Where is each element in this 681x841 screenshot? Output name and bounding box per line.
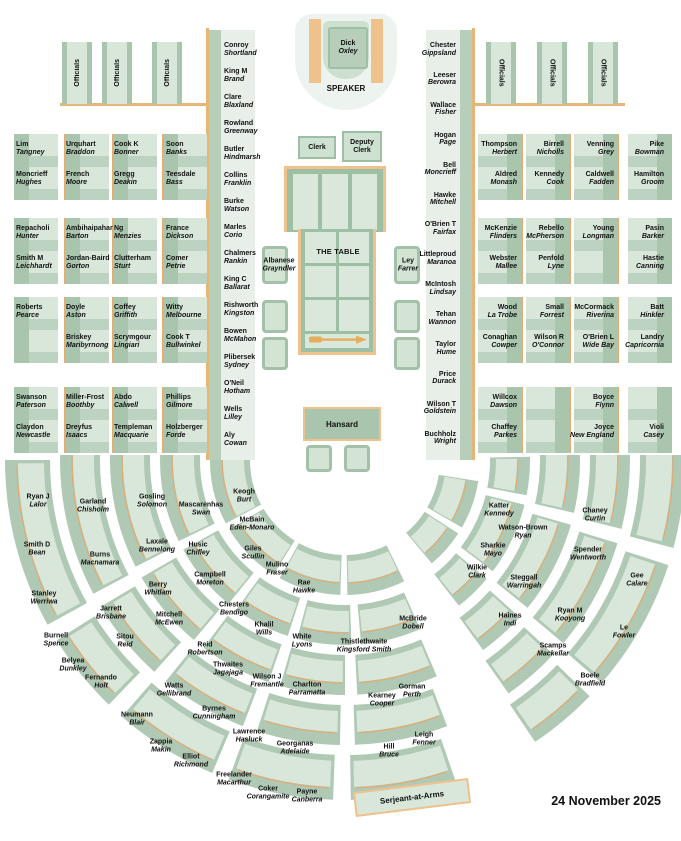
gov-frontbench-seat: PlibersekSydney [224, 354, 255, 369]
member-electorate: Bruce [379, 751, 399, 759]
opp-backbench-seat: KennedyCook [510, 171, 564, 186]
member-name: McIntosh [396, 281, 456, 289]
member-name: Moncrieff [16, 171, 48, 179]
gov-frontbench-seat: King MBrand [224, 68, 247, 83]
member-electorate: Hinkler [610, 312, 664, 320]
floor-seat-label: ElliotRichmond [174, 753, 208, 768]
gov-backbench-seat: Cook KBonner [114, 141, 139, 156]
member-electorate: Bennelong [139, 546, 175, 554]
gov-frontbench-seat: BurkeWatson [224, 198, 249, 213]
member-name: Plibersek [224, 354, 255, 362]
member-name: Mascarenhas [179, 501, 223, 509]
member-electorate: McMahon [224, 336, 256, 344]
opp-backbench-seat: VenningGrey [560, 141, 614, 156]
member-name: Thwaites [213, 661, 243, 669]
gov-backbench-seat: DoyleAston [66, 304, 86, 319]
member-name: Scamps [537, 642, 569, 650]
officials-label: Officials [114, 59, 121, 87]
floor-seat-label: CampbellMoreton [194, 571, 226, 586]
member-name: Swanson [16, 394, 47, 402]
member-electorate: Berowra [396, 79, 456, 87]
member-name: Burns [81, 551, 120, 559]
member-electorate: Barker [610, 233, 664, 241]
member-electorate: Makin [150, 746, 173, 754]
member-name: Katter [484, 502, 514, 510]
floor-seat-label: BurnellSpence [44, 632, 69, 647]
table-panel [305, 266, 336, 297]
member-name: Templeman [114, 424, 152, 432]
opp-frontbench-seat: BellMoncrieff [396, 162, 456, 177]
member-name: Stanley [30, 590, 57, 598]
member-electorate: Mackellar [537, 650, 569, 658]
member-electorate: Lalor [27, 501, 50, 509]
member-name: Rebello [510, 225, 564, 233]
member-electorate: Herbert [463, 149, 517, 157]
opp-backbench-seat: VioliCasey [610, 424, 664, 439]
gov-backbench-seat: TeesdaleBass [166, 171, 195, 186]
member-electorate: Corio [224, 232, 246, 240]
member-name: Wood [463, 304, 517, 312]
member-electorate: Casey [610, 432, 664, 440]
opp-backbench-seat: HamiltonGroom [610, 171, 664, 186]
floor-seat-label: FreelanderMacarthur [216, 771, 252, 786]
member-name: Holzberger [166, 424, 203, 432]
member-electorate: Aston [66, 312, 86, 320]
member-name: White [292, 633, 313, 641]
officials-desk: Officials [152, 42, 182, 104]
member-name: Chalmers [224, 250, 256, 258]
member-electorate: Reid [116, 641, 134, 649]
gov-backbench-seat: BriskeyMaribyrnong [66, 334, 108, 349]
gov-backbench-seat: LimTangney [16, 141, 45, 156]
member-electorate: Bean [24, 549, 50, 557]
officials-label: Officials [600, 59, 607, 87]
member-electorate: Gilmore [166, 402, 192, 410]
member-electorate: Chisholm [77, 506, 109, 514]
member-electorate: Hasluck [233, 736, 265, 744]
member-name: Thistlethwaite [337, 638, 391, 646]
member-electorate: McEwen [155, 619, 183, 627]
member-electorate: Bendigo [219, 609, 249, 617]
member-electorate: Petrie [166, 263, 188, 271]
opp-backbench-seat: HastieCanning [610, 255, 664, 270]
member-electorate: Werriwa [30, 598, 57, 606]
member-electorate: Parramatta [289, 689, 326, 697]
member-name: Payne [292, 788, 323, 796]
member-electorate: Calare [626, 580, 647, 588]
member-name: Reid [188, 641, 223, 649]
member-name: Sharkie [480, 542, 505, 550]
gov-frontbench-seat: AlyCowan [224, 432, 247, 447]
member-name: Small [510, 304, 564, 312]
member-name: Taylor [396, 341, 456, 349]
speaker-chair-trim-right [371, 19, 383, 83]
member-name: Kearney [368, 692, 396, 700]
member-name: Smith D [24, 541, 50, 549]
member-name: Hill [379, 743, 399, 751]
opp-backbench-seat: Wilson RO'Connor [510, 334, 564, 349]
member-electorate: Menzies [114, 233, 141, 241]
member-name: Scrymgour [114, 334, 151, 342]
member-name: Gregg [114, 171, 137, 179]
member-electorate: Fisher [396, 109, 456, 117]
member-name: Caldwell [560, 171, 614, 179]
speaker-chair-trim-left [309, 19, 321, 83]
member-electorate: Nicholls [510, 149, 564, 157]
gov-backbench-seat: TemplemanMacquarie [114, 424, 152, 439]
member-name: Le [613, 624, 636, 632]
officials-label: Officials [164, 59, 171, 87]
member-electorate: Rankin [224, 258, 256, 266]
speaker-name: Dick Oxley [338, 40, 357, 55]
gov-frontbench-seat: ButlerHindmarsh [224, 146, 261, 161]
plan-date: 24 November 2025 [551, 794, 661, 808]
gov-backbench-seat: SwansonPaterson [16, 394, 47, 409]
speaker-electorate: Oxley [338, 48, 357, 56]
member-electorate: Bradfield [575, 680, 605, 688]
member-name: Fernando [85, 674, 117, 682]
floor-seat-label: LeFowler [613, 624, 636, 639]
officials-label: Officials [498, 59, 505, 87]
member-electorate: McPherson [510, 233, 564, 241]
member-electorate: Deakin [114, 179, 137, 187]
opp-backbench-seat: McCormackRiverina [560, 304, 614, 319]
member-name: Butler [224, 146, 261, 154]
gov-backbench-seat: ComerPetrie [166, 255, 188, 270]
gov-backbench-seat: AbdoCalwell [114, 394, 138, 409]
floor-seat-label: LeighFenner [412, 731, 435, 746]
member-electorate: Tangney [16, 149, 45, 157]
gov-frontbench-seat: King CBallarat [224, 276, 250, 291]
member-electorate: Sturt [114, 263, 151, 271]
opp-backbench-seat: CaldwellFadden [560, 171, 614, 186]
member-electorate: Spence [44, 640, 69, 648]
member-electorate: Whitlam [144, 589, 171, 597]
member-name: Clare [224, 94, 253, 102]
opp-backbench-seat: BattHinkler [610, 304, 664, 319]
member-name: O'Neil [224, 380, 250, 388]
mace-icon [307, 333, 369, 346]
gov-frontbench-seat: MarlesCorio [224, 224, 246, 239]
member-electorate: Hindmarsh [224, 154, 261, 162]
member-name: O'Brien L [560, 334, 614, 342]
floor-seat-label: HainesIndi [499, 612, 522, 627]
member-electorate: Fowler [613, 632, 636, 640]
member-electorate: Mitchell [396, 199, 456, 207]
floor-seat-label: MitchellMcEwen [155, 611, 183, 626]
member-electorate: Greenway [224, 128, 257, 136]
officials-desk: Officials [537, 42, 567, 104]
member-name: Teesdale [166, 171, 195, 179]
member-name: King M [224, 68, 247, 76]
member-name: Steggall [507, 574, 542, 582]
member-electorate: Lyons [292, 641, 313, 649]
member-electorate: Gippsland [396, 50, 456, 58]
floor-seat-label: RaeHawke [293, 579, 315, 594]
member-electorate: Dickson [166, 233, 193, 241]
opposition-leader-seat-label: LeyFarrer [398, 257, 418, 272]
gov-frontbench-seat: CollinsFranklin [224, 172, 251, 187]
member-electorate: Richmond [174, 761, 208, 769]
member-name: Coker [247, 785, 290, 793]
officials-desk: Officials [486, 42, 516, 104]
member-electorate: Isaacs [66, 432, 92, 440]
floor-seat-label: SitouReid [116, 633, 134, 648]
member-name: Penfold [510, 255, 564, 263]
member-electorate: Parkes [463, 432, 517, 440]
member-electorate: Cunningham [193, 713, 236, 721]
opp-backbench-seat: McKenzieFlinders [463, 225, 517, 240]
member-electorate: Macnamara [81, 559, 120, 567]
floor-seat-label: LaxaleBennelong [139, 538, 175, 553]
member-electorate: Banks [166, 149, 187, 157]
member-electorate: Canberra [292, 796, 323, 804]
member-electorate: Chifley [186, 549, 209, 557]
member-electorate: Goldstein [396, 408, 456, 416]
member-name: Young [560, 225, 614, 233]
officials-desk: Officials [62, 42, 92, 104]
government-frontbench-desk [209, 30, 221, 460]
floor-seat-label: KhalilWills [254, 621, 273, 636]
member-name: Phillips [166, 394, 192, 402]
pm-seat-label: AlbaneseGrayndler [262, 257, 295, 272]
member-electorate: Corangamite [247, 793, 290, 801]
member-name: Rae [293, 579, 315, 587]
gov-backbench-seat: AmbihaipaharBarton [66, 225, 113, 240]
floor-seat-label: GarlandChisholm [77, 498, 109, 513]
gov-backbench-seat: PhillipsGilmore [166, 394, 192, 409]
officials-label: Officials [549, 59, 556, 87]
gov-frontbench-seat: WellsLilley [224, 406, 242, 421]
member-name: Burnell [44, 632, 69, 640]
member-name: Wilkie [467, 564, 487, 572]
gov-backbench-seat: Smith MLeichhardt [16, 255, 52, 270]
gov-backbench-seat: RepacholiHunter [16, 225, 49, 240]
member-electorate: Longman [560, 233, 614, 241]
member-name: Price [396, 371, 456, 379]
member-name: Cook T [166, 334, 201, 342]
member-name: McBain [230, 516, 275, 524]
member-name: Clutterham [114, 255, 151, 263]
member-name: Roberts [16, 304, 42, 312]
gov-backbench-seat: Jordan-BairdGorton [66, 255, 110, 270]
floor-seat-label: WhiteLyons [292, 633, 313, 648]
gov-backbench-seat: Miller-FrostBoothby [66, 394, 104, 409]
member-name: Khalil [254, 621, 273, 629]
member-name: Neumann [121, 711, 153, 719]
gov-backbench-seat: NgMenzies [114, 225, 141, 240]
member-electorate: Curtin [582, 515, 607, 523]
gov-backbench-seat: FranceDickson [166, 225, 193, 240]
opp-backbench-seat: WillcoxDawson [463, 394, 517, 409]
member-name: Miller-Frost [66, 394, 104, 402]
member-electorate: Dawson [463, 402, 517, 410]
member-electorate: O'Connor [510, 342, 564, 350]
floor-seat-label: SteggallWarringah [507, 574, 542, 589]
gov-backbench-seat: ClaydonNewcastle [16, 424, 50, 439]
member-name: Wilson R [510, 334, 564, 342]
member-electorate: Cowper [463, 342, 517, 350]
member-name: Wallace [396, 102, 456, 110]
floor-seat-label: ByrnesCunningham [193, 705, 236, 720]
member-name: Conaghan [463, 334, 517, 342]
member-name: Aly [224, 432, 247, 440]
bench-arc [494, 459, 518, 491]
member-electorate: Braddon [66, 149, 96, 157]
member-electorate: La Trobe [463, 312, 517, 320]
member-electorate: Blair [121, 719, 153, 727]
opp-backbench-seat: AldredMonash [463, 171, 517, 186]
member-name: Bell [396, 162, 456, 170]
member-name: Collins [224, 172, 251, 180]
floor-seat-label: MascarenhasSwan [179, 501, 223, 516]
opp-backbench-seat: PikeBowman [610, 141, 664, 156]
member-electorate: Hughes [16, 179, 48, 187]
member-name: Ambihaipahar [66, 225, 113, 233]
table-panel [339, 300, 370, 331]
floor-seat-label: JarrettBrisbane [96, 605, 126, 620]
member-electorate: Scullin [242, 553, 265, 561]
gov-frontbench-seat: ConroyShortland [224, 42, 257, 57]
opp-frontbench-seat: TaylorHume [396, 341, 456, 356]
member-name: Jarrett [96, 605, 126, 613]
floor-seat-label: GeeCalare [626, 572, 647, 587]
table-panel [352, 174, 377, 230]
floor-seat-label: CokerCorangamite [247, 785, 290, 800]
floor-seat-label: NeumannBlair [121, 711, 153, 726]
opp-frontbench-seat: O'Brien TFairfax [396, 221, 456, 236]
floor-seat-label: FernandoHolt [85, 674, 117, 689]
opp-frontbench-seat: ChesterGippsland [396, 42, 456, 57]
member-electorate: Perth [399, 691, 426, 699]
member-name: Venning [560, 141, 614, 149]
member-name: Mulino [266, 561, 289, 569]
member-name: Ryan J [27, 493, 50, 501]
member-name: Chaney [582, 507, 607, 515]
floor-seat-label: GilesScullin [242, 545, 265, 560]
member-electorate: Hawke [293, 587, 315, 595]
member-electorate: Brisbane [96, 613, 126, 621]
member-electorate: Franklin [224, 180, 251, 188]
member-electorate: Grayndler [262, 265, 295, 273]
member-electorate: Melbourne [166, 312, 201, 320]
member-electorate: Fraser [266, 569, 289, 577]
gov-backbench-seat: WittyMelbourne [166, 304, 201, 319]
member-name: Ley [398, 257, 418, 265]
member-electorate: Wide Bay [560, 342, 614, 350]
opp-frontbench-seat: WallaceFisher [396, 102, 456, 117]
member-electorate: Kingsford Smith [337, 646, 391, 654]
member-name: Wilson J [250, 673, 283, 681]
government-table-chair [262, 300, 288, 333]
member-electorate: Wills [254, 629, 273, 637]
table-label: THE TABLE [316, 247, 359, 256]
member-electorate: Groom [610, 179, 664, 187]
member-name: Leigh [412, 731, 435, 739]
member-name: Briskey [66, 334, 108, 342]
floor-seat-label: LawrenceHasluck [233, 728, 265, 743]
member-name: King C [224, 276, 250, 284]
member-name: Bowen [224, 328, 256, 336]
member-electorate: Grey [560, 149, 614, 157]
member-name: Spender [570, 546, 606, 554]
member-name: Byrnes [193, 705, 236, 713]
member-electorate: Bowman [610, 149, 664, 157]
member-electorate: Wright [396, 438, 456, 446]
member-electorate: Sydney [224, 362, 255, 370]
member-name: Comer [166, 255, 188, 263]
member-name: Kennedy [510, 171, 564, 179]
table-north-section [284, 166, 386, 232]
floor-seat-label: ChestersBendigo [219, 601, 249, 616]
member-electorate: Wentworth [570, 554, 606, 562]
member-name: Lawrence [233, 728, 265, 736]
member-electorate: Swan [179, 509, 223, 517]
member-name: Repacholi [16, 225, 49, 233]
gov-backbench-seat: RobertsPearce [16, 304, 42, 319]
floor-seat-label: BerryWhitlam [144, 581, 171, 596]
member-name: Soon [166, 141, 187, 149]
member-electorate: Gorton [66, 263, 110, 271]
member-name: Lim [16, 141, 45, 149]
hansard-chair [306, 445, 332, 472]
floor-seat-label: SharkieMayo [480, 542, 505, 557]
member-name: Witty [166, 304, 201, 312]
member-name: Batt [610, 304, 664, 312]
member-name: Willcox [463, 394, 517, 402]
opp-backbench-seat: WebsterMallee [463, 255, 517, 270]
floor-seat-label: KearneyCooper [368, 692, 396, 707]
member-name: Smith M [16, 255, 52, 263]
member-name: Haines [499, 612, 522, 620]
clerk-desk: Clerk [298, 136, 336, 159]
member-electorate: Moore [66, 179, 89, 187]
member-name: Georganas [277, 740, 314, 748]
floor-seat-label: Wilson JFremantle [250, 673, 283, 688]
member-electorate: Dobell [399, 623, 427, 631]
floor-seat-label: Smith DBean [24, 541, 50, 556]
member-electorate: Wannon [396, 319, 456, 327]
member-name: Jordan-Baird [66, 255, 110, 263]
floor-seat-label: WilkieClark [467, 564, 487, 579]
opp-backbench-seat: WoodLa Trobe [463, 304, 517, 319]
floor-seat-label: WattsGellibrand [157, 682, 192, 697]
member-electorate: Macquarie [114, 432, 152, 440]
gov-frontbench-seat: O'NeilHotham [224, 380, 250, 395]
member-electorate: Calwell [114, 402, 138, 410]
member-name: Mitchell [155, 611, 183, 619]
member-electorate: Forde [166, 432, 203, 440]
member-name: Belyea [59, 657, 86, 665]
member-electorate: Brand [224, 76, 247, 84]
member-name: Gee [626, 572, 647, 580]
floor-seat-label: Ryan JLalor [27, 493, 50, 508]
floor-seat-label: GormanPerth [399, 683, 426, 698]
member-name: Chesters [219, 601, 249, 609]
floor-seat-label: KatterKennedy [484, 502, 514, 517]
member-electorate: Eden-Monaro [230, 524, 275, 532]
member-electorate: Lindsay [396, 289, 456, 297]
member-electorate: Blaxland [224, 102, 253, 110]
member-electorate: Bullwinkel [166, 342, 201, 350]
member-electorate: Maribyrnong [66, 342, 108, 350]
gov-frontbench-seat: RishworthKingston [224, 302, 258, 317]
opp-backbench-seat: ThompsonHerbert [463, 141, 517, 156]
member-name: O'Brien T [396, 221, 456, 229]
gov-backbench-seat: SoonBanks [166, 141, 187, 156]
member-name: Tehan [396, 311, 456, 319]
officials-desk: Officials [588, 42, 618, 104]
